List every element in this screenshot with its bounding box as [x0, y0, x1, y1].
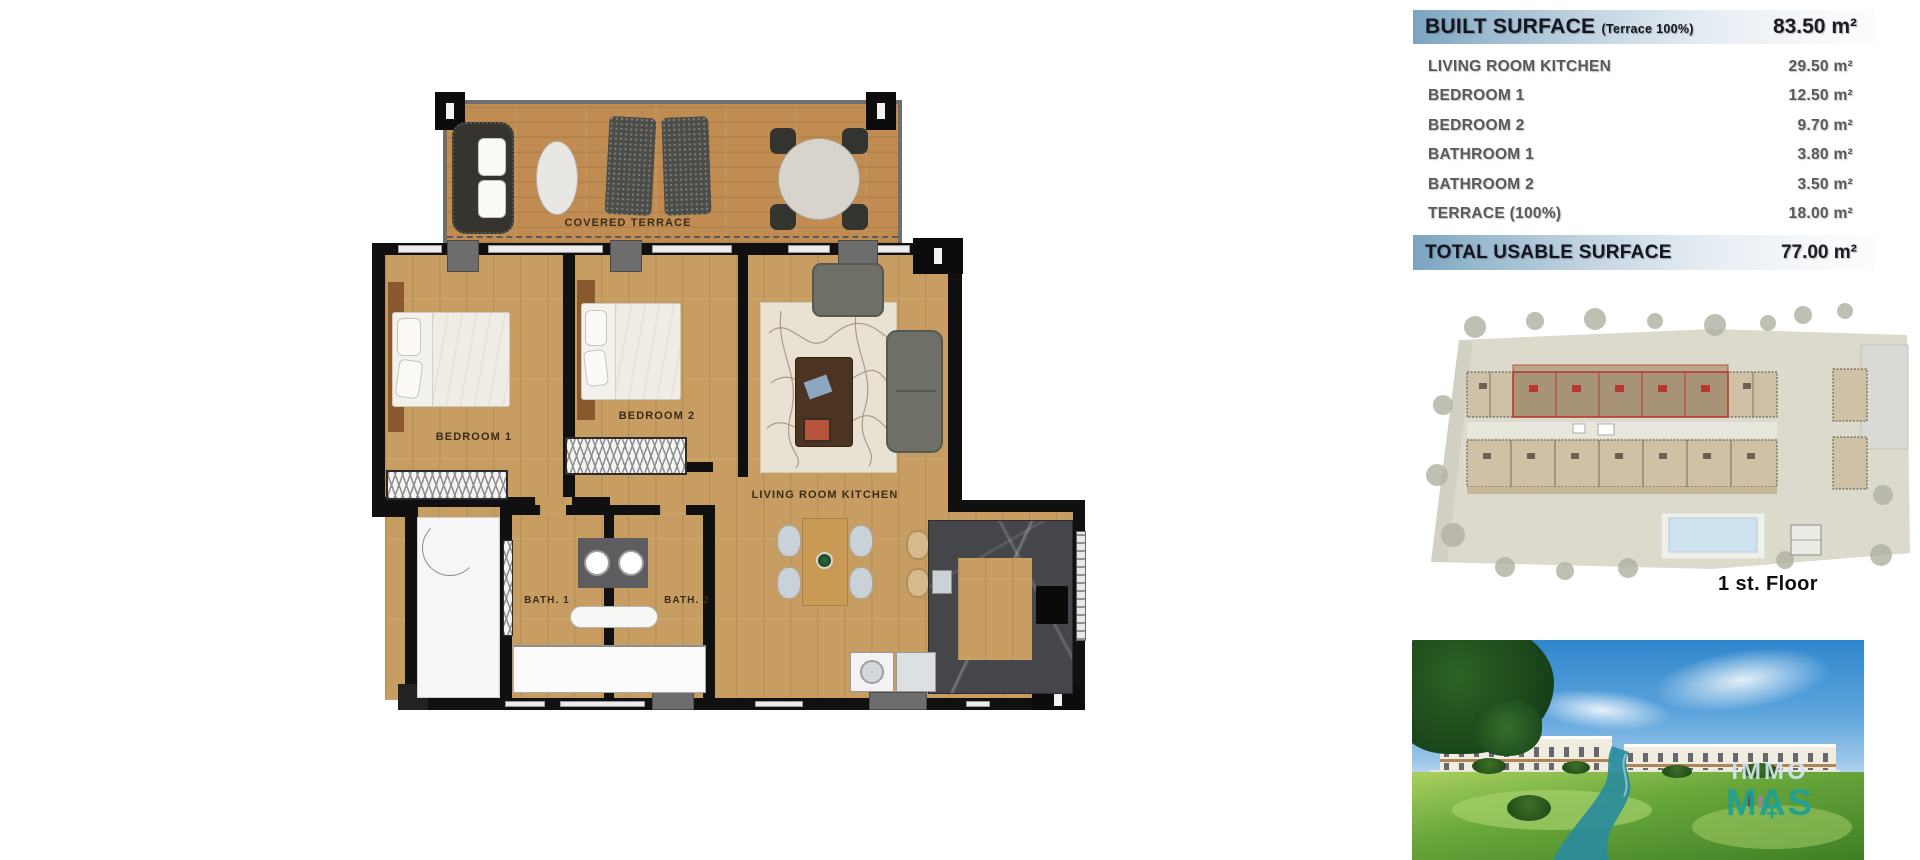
dining-chair: [848, 524, 874, 558]
terrace-coffee-table: [536, 141, 578, 215]
sofa-cushion-line: [896, 390, 936, 392]
duvet: [432, 313, 509, 406]
counter-sink: [896, 652, 936, 692]
label-bedroom-2: BEDROOM 2: [587, 410, 727, 423]
surface-row: LIVING ROOM KITCHEN 29.50 m²: [1413, 52, 1875, 82]
terrace-pillar-right: [866, 92, 896, 130]
site-plan-caption: 1 st. Floor: [1678, 573, 1858, 596]
watermark-line1: IMMO: [1720, 760, 1820, 784]
watermark-logo: IMMO MAS +: [1720, 760, 1820, 840]
terrace-sofa-cushion: [478, 138, 506, 176]
render-photo: IMMO MAS +: [1412, 640, 1864, 860]
terrace-wall-right: [898, 100, 902, 243]
door-post: [610, 240, 642, 272]
surface-row: BATHROOM 2 3.50 m²: [1413, 170, 1875, 200]
side-railing: [1076, 531, 1086, 641]
surface-row-label: BATHROOM 1: [1428, 146, 1534, 164]
label-bath-1: BATH. 1: [516, 595, 578, 607]
surface-row-label: BEDROOM 2: [1428, 117, 1525, 135]
door-post: [447, 240, 479, 272]
surface-row-value: 12.50 m²: [1789, 87, 1853, 105]
door-opening: [540, 505, 566, 515]
window: [966, 701, 990, 707]
built-surface-value: 83.50 m²: [1773, 15, 1857, 39]
corner-pillar: [913, 238, 963, 274]
terrace-wall-top: [443, 100, 902, 104]
window: [755, 701, 803, 707]
hall-closet: [503, 540, 513, 636]
pillow: [397, 318, 421, 356]
surface-row-value: 9.70 m²: [1797, 117, 1853, 135]
surface-row-label: BEDROOM 1: [1428, 87, 1525, 105]
total-usable-value: 77.00 m²: [1781, 242, 1857, 264]
cooktop: [1036, 586, 1068, 624]
wall-right-step: [948, 500, 1085, 512]
sink-basin: [618, 550, 644, 576]
label-bedroom-1: BEDROOM 1: [404, 431, 544, 444]
surface-table-rows: LIVING ROOM KITCHEN 29.50 m² BEDROOM 1 1…: [1413, 52, 1875, 229]
surface-row: TERRACE (100%) 18.00 m²: [1413, 200, 1875, 230]
wall-left-upper: [372, 243, 385, 517]
door-opening: [660, 505, 686, 515]
wardrobe-2: [565, 437, 687, 475]
sun-lounger: [661, 116, 711, 216]
total-usable-label: TOTAL USABLE SURFACE: [1425, 242, 1672, 264]
label-living-room-kitchen: LIVING ROOM KITCHEN: [745, 489, 905, 502]
wardrobe-1: [386, 470, 508, 500]
bar-chair: [906, 568, 930, 598]
surface-row-value: 29.50 m²: [1789, 58, 1853, 76]
surface-row: BEDROOM 1 12.50 m²: [1413, 82, 1875, 112]
site-plan-drawing: [1413, 285, 1920, 585]
site-plan: 1 st. Floor: [1413, 285, 1920, 615]
duvet: [615, 304, 680, 399]
pillow: [585, 310, 607, 346]
label-bath-2: BATH. 2: [656, 595, 718, 607]
kitchen-floor-notch: [958, 558, 1032, 660]
surface-row-label: BATHROOM 2: [1428, 176, 1534, 194]
shower: [513, 645, 706, 693]
bush: [1507, 795, 1551, 821]
watermark-plus: +: [1766, 804, 1778, 824]
pillow: [583, 349, 609, 387]
window: [488, 245, 603, 253]
terrace-round-table: [778, 138, 860, 220]
tree-foliage: [1472, 700, 1542, 756]
door-swing-arc: [422, 520, 478, 576]
built-surface-title: BUILT SURFACE: [1425, 15, 1595, 38]
threshold: [869, 692, 927, 710]
floor-plan: COVERED TERRACE BEDROOM 1: [0, 0, 1200, 860]
table-centerpiece: [816, 552, 833, 569]
dining-chair: [776, 524, 802, 558]
window: [560, 701, 645, 707]
surface-row-value: 3.80 m²: [1797, 146, 1853, 164]
bush: [1472, 758, 1506, 774]
surface-table: BUILT SURFACE (Terrace 100%) 83.50 m² LI…: [1413, 10, 1875, 270]
built-surface-label: BUILT SURFACE (Terrace 100%): [1425, 15, 1694, 39]
sink-basin: [584, 550, 610, 576]
bush: [1662, 765, 1692, 778]
surface-row-label: TERRACE (100%): [1428, 205, 1561, 223]
wall-right-upper: [948, 243, 962, 512]
label-covered-terrace: COVERED TERRACE: [538, 217, 718, 231]
surface-row-value: 3.50 m²: [1797, 176, 1853, 194]
bush: [1562, 761, 1590, 774]
bar-chair: [906, 530, 930, 560]
terrace-sofa-cushion: [478, 180, 506, 218]
surface-row: BEDROOM 2 9.70 m²: [1413, 111, 1875, 141]
window: [788, 245, 830, 253]
window: [505, 701, 545, 707]
sun-lounger: [604, 116, 656, 216]
surface-row: BATHROOM 1 3.80 m²: [1413, 141, 1875, 171]
window: [398, 245, 442, 253]
dining-chair: [848, 566, 874, 600]
dining-chair: [776, 566, 802, 600]
surface-row-value: 18.00 m²: [1789, 205, 1853, 223]
surface-table-footer: TOTAL USABLE SURFACE 77.00 m²: [1413, 235, 1875, 270]
bathtub: [570, 606, 658, 628]
wall-bedroom2-living: [738, 255, 748, 477]
window: [652, 245, 732, 253]
wall-left-lower: [405, 505, 417, 710]
built-surface-sublabel: (Terrace 100%): [1601, 22, 1693, 36]
surface-table-header: BUILT SURFACE (Terrace 100%) 83.50 m²: [1413, 10, 1875, 44]
armchair: [812, 263, 884, 317]
terrace-boundary-dashed: [447, 236, 898, 238]
threshold: [652, 692, 694, 710]
surface-row-label: LIVING ROOM KITCHEN: [1428, 58, 1611, 76]
kitchen-sink: [932, 570, 952, 594]
table-decor: [803, 418, 831, 442]
washing-machine-drum: [860, 660, 884, 684]
